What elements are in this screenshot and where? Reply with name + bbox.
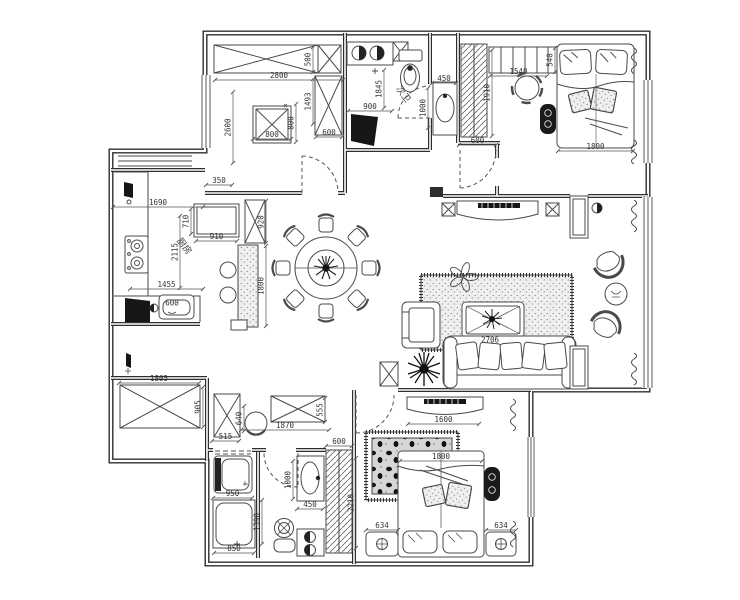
room-dining bbox=[273, 215, 380, 322]
dimension-label: 1910 bbox=[483, 83, 492, 102]
hall-chair bbox=[245, 412, 267, 435]
dimension-label: 1455 bbox=[157, 280, 175, 289]
dimension-label: 1800 bbox=[586, 142, 605, 151]
tv-speaker bbox=[442, 203, 455, 216]
dimension-label: 2210 bbox=[347, 493, 356, 512]
room-living bbox=[380, 201, 576, 389]
shower-dark bbox=[351, 114, 378, 146]
tv-console-2 bbox=[407, 397, 483, 415]
curtain bbox=[632, 200, 637, 385]
dimension: 900 bbox=[346, 102, 394, 113]
door-bedroom2 bbox=[356, 395, 394, 433]
dimension-label: 900 bbox=[363, 102, 377, 111]
armchair-chaise bbox=[402, 302, 440, 348]
dimension-label: 1540 bbox=[509, 67, 528, 76]
nightstand bbox=[366, 532, 398, 556]
dimension-label: 1000 bbox=[284, 470, 293, 489]
dimension: 634 bbox=[364, 521, 400, 532]
dimension: 1000 bbox=[419, 86, 431, 130]
shower-tray bbox=[213, 500, 255, 548]
dimension-label: 905 bbox=[194, 400, 203, 414]
dimension-label: 1800 bbox=[432, 452, 451, 461]
center-mark bbox=[372, 68, 378, 74]
tv-speaker bbox=[546, 203, 559, 216]
dimension-label: 600 bbox=[165, 299, 179, 308]
dimension-label: 850 bbox=[227, 544, 241, 553]
storage-and-hall bbox=[120, 353, 325, 437]
switch-symbol bbox=[124, 182, 133, 198]
dimension-label: 1805 bbox=[150, 374, 168, 383]
toilet-2 bbox=[274, 519, 295, 553]
bed-1 bbox=[557, 44, 634, 148]
balcony-right bbox=[570, 196, 637, 389]
sofa bbox=[443, 336, 576, 389]
window-balcony-right bbox=[642, 197, 653, 388]
bench-dark-2 bbox=[484, 467, 500, 501]
dimension-label: 1000 bbox=[419, 98, 428, 117]
coffee-table bbox=[462, 302, 524, 338]
curtain bbox=[511, 399, 516, 547]
dimension-label: 600 bbox=[322, 128, 336, 137]
bench-dark bbox=[540, 104, 556, 134]
door-room1 bbox=[302, 156, 338, 193]
dimension-label: 350 bbox=[212, 176, 226, 185]
wardrobe-top bbox=[214, 45, 341, 73]
dimension: 600 bbox=[324, 437, 354, 448]
nightstand bbox=[486, 532, 516, 556]
dimension-label: 1493 bbox=[304, 92, 313, 110]
dimension-label: 710 bbox=[182, 214, 191, 228]
window-room1-left bbox=[201, 75, 210, 148]
dimension-label: 1870 bbox=[276, 421, 295, 430]
dimension-label: 1800 bbox=[257, 276, 266, 295]
dimension-label: 450 bbox=[437, 74, 451, 83]
dimension: 2706 bbox=[481, 336, 500, 345]
dimension: 2115 bbox=[171, 214, 183, 290]
washing-machine bbox=[214, 456, 252, 493]
dimension-label: 634 bbox=[494, 521, 508, 530]
dimension: 1493 bbox=[304, 77, 316, 126]
storage-cabinet bbox=[120, 385, 200, 428]
dimension-label: 515 bbox=[219, 432, 233, 441]
window-bedroom1-right bbox=[642, 80, 653, 163]
dimension: 1455 bbox=[128, 280, 205, 291]
bar-counter bbox=[231, 245, 258, 330]
dimension-label: 2600 bbox=[224, 118, 233, 137]
window-bedroom2-right bbox=[526, 437, 536, 517]
dimension: 350 bbox=[204, 176, 234, 187]
basin-cabinet bbox=[297, 456, 324, 501]
dimension: 2600 bbox=[224, 90, 236, 165]
dimension-label: 1690 bbox=[149, 198, 168, 207]
dimension-label: 800 bbox=[287, 116, 296, 130]
wardrobe-right bbox=[315, 76, 342, 135]
bar-stool bbox=[220, 287, 236, 303]
vanity-double-basin bbox=[347, 42, 393, 65]
corner-dark bbox=[125, 298, 150, 322]
switch-symbol bbox=[126, 353, 131, 368]
side-table-x bbox=[380, 362, 398, 386]
dimension-label: 910 bbox=[210, 232, 224, 241]
dimension-label: 600 bbox=[332, 437, 346, 446]
dimension-label: 2706 bbox=[481, 336, 500, 345]
dimension-label: 450 bbox=[303, 500, 317, 509]
dimension-label: 800 bbox=[265, 130, 279, 139]
dimension: 600 bbox=[165, 299, 179, 308]
dimension-label: 2800 bbox=[270, 71, 289, 80]
room-bath-main bbox=[213, 450, 352, 556]
round-table-small bbox=[512, 73, 542, 103]
floor-plant bbox=[408, 352, 440, 386]
floor-plan-canvas: 2800500260014938008006003509001845450100… bbox=[0, 0, 740, 600]
dimension-label: 1390 bbox=[253, 512, 262, 531]
dimension: 1000 bbox=[284, 459, 296, 501]
basin-niche bbox=[433, 82, 457, 135]
dimension: 1600 bbox=[406, 415, 481, 426]
tea-table bbox=[605, 283, 627, 305]
door-sliding-laundry bbox=[215, 451, 251, 454]
dimension-label: 540 bbox=[546, 53, 555, 67]
dimension: 450 bbox=[295, 500, 325, 511]
dimension-label: 500 bbox=[304, 52, 313, 66]
tv-console bbox=[457, 201, 538, 220]
stove bbox=[125, 236, 148, 273]
dimension-label: 634 bbox=[375, 521, 389, 530]
dimension-label: 640 bbox=[235, 411, 244, 425]
dimension-label: 950 bbox=[226, 489, 240, 498]
bed-2 bbox=[398, 451, 484, 557]
window-kitchen-top bbox=[117, 154, 193, 167]
dimension: 450 bbox=[430, 74, 458, 85]
dimension-label: 1845 bbox=[375, 80, 384, 98]
dimension-label: 920 bbox=[257, 215, 266, 229]
dimension: 710 bbox=[182, 207, 194, 236]
cabinet-circles bbox=[297, 529, 324, 556]
dimension-label: 600 bbox=[471, 136, 485, 145]
floor-plan-page: 2800500260014938008006003509001845450100… bbox=[0, 0, 740, 600]
dimension-label: 555 bbox=[316, 403, 325, 417]
dimension-label: 1600 bbox=[434, 415, 453, 424]
bar-stool bbox=[220, 262, 236, 278]
dimension: 1690 bbox=[111, 198, 205, 209]
wall-column bbox=[430, 187, 443, 197]
door-entry bbox=[460, 150, 496, 188]
